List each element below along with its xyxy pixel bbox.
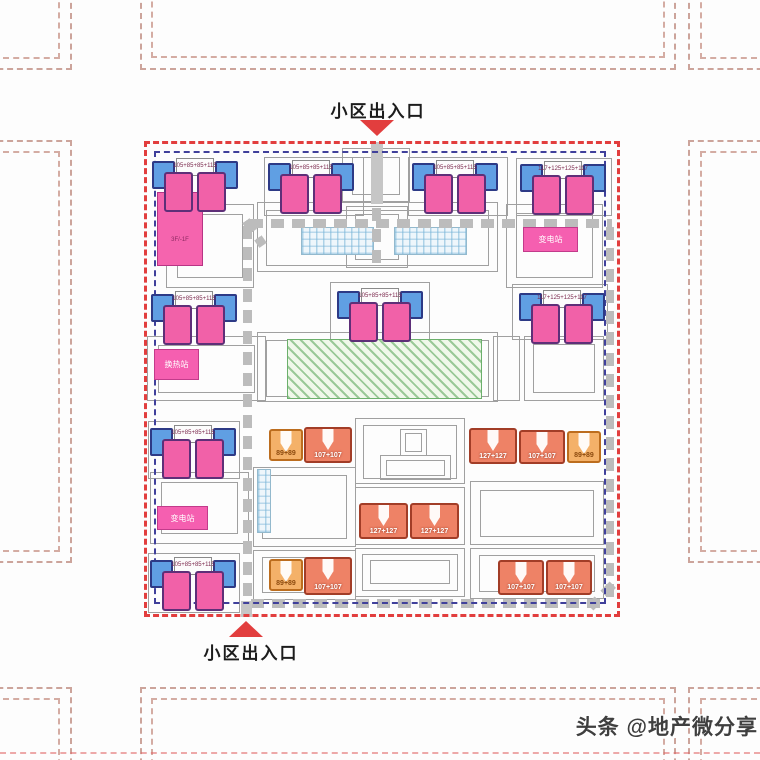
tower-group: 105+85+85+115 (152, 157, 238, 213)
tower-notch (323, 559, 334, 580)
site-plan: 3F/-1F 变电站 换热站 变电站 105+85+85+115 105+85+… (0, 0, 760, 760)
tower-pink (349, 302, 378, 342)
tower-group-label: 117+125+125+117 (514, 166, 612, 172)
heat-exchange-box-west: 换热站 (154, 349, 199, 380)
tower-group: 105+85+85+115 (337, 287, 423, 343)
tower-pink (195, 571, 224, 611)
watermark: 头条 @地产微分享 (540, 711, 758, 741)
orange-tower: 107+107 (304, 557, 352, 595)
tower-pink (564, 304, 593, 344)
tower-notch (537, 432, 548, 453)
orange-tower-label: 107+107 (521, 453, 563, 460)
orange-tower: 89+89 (567, 431, 601, 463)
orange-tower: 107+107 (498, 560, 544, 595)
orange-tower: 107+107 (546, 560, 592, 595)
tower-pink (195, 439, 224, 479)
entrance-label-north: 小区出入口 (308, 97, 448, 122)
substation-label: 变电站 (171, 513, 195, 524)
tower-pink (162, 571, 191, 611)
entrance-label-south: 小区出入口 (181, 639, 321, 664)
tower-pink (162, 439, 191, 479)
parcel-north-inner (151, 0, 665, 58)
tower-pink (531, 304, 560, 344)
substation-label: 变电站 (539, 234, 563, 245)
tower-notch (429, 505, 440, 526)
substation-box-southwest: 变电站 (157, 506, 208, 530)
tower-group: 105+85+85+115 (150, 556, 236, 612)
orange-tower: 107+107 (519, 430, 565, 464)
tower-pink (424, 174, 453, 214)
tower-group-label: 105+85+85+115 (146, 163, 244, 169)
tower-notch (281, 431, 292, 452)
orange-tower-label: 89+89 (569, 452, 599, 459)
orange-tower: 89+89 (269, 429, 303, 461)
orange-tower: 127+127 (469, 428, 517, 464)
entrance-arrow-south (229, 621, 263, 637)
tower-group-label: 105+85+85+115 (145, 296, 243, 302)
orange-tower-label: 89+89 (271, 580, 301, 587)
orange-tower-label: 127+127 (471, 453, 515, 460)
orange-tower: 107+107 (304, 427, 352, 463)
podium-floors-label: 3F/-1F (158, 237, 202, 243)
tower-group-label: 105+85+85+115 (406, 165, 504, 171)
orange-tower-label: 89+89 (271, 450, 301, 457)
orange-tower: 89+89 (269, 559, 303, 591)
tower-group: 105+85+85+115 (151, 290, 237, 346)
parcel-west-inner (0, 151, 60, 552)
tower-pink (197, 172, 226, 212)
tower-group: 117+125+125+117 (519, 289, 605, 345)
tower-pink (163, 305, 192, 345)
tower-pink (280, 174, 309, 214)
substation-box-northeast: 变电站 (523, 227, 578, 252)
orange-tower: 127+127 (410, 503, 459, 539)
orange-tower-label: 107+107 (306, 452, 350, 459)
heat-exchange-label: 换热站 (165, 359, 189, 370)
tower-notch (323, 429, 334, 450)
tower-notch (378, 505, 389, 526)
orange-tower-label: 127+127 (412, 528, 457, 535)
tower-pink (164, 172, 193, 212)
tower-notch (281, 561, 292, 582)
tower-notch (516, 562, 527, 583)
tower-group: 105+85+85+115 (412, 159, 498, 215)
orange-tower-label: 127+127 (361, 528, 406, 535)
tower-group-label: 117+125+125+117 (513, 295, 611, 301)
tower-notch (579, 433, 590, 454)
tower-group-label: 105+85+85+115 (262, 165, 360, 171)
tower-group-label: 105+85+85+115 (331, 293, 429, 299)
orange-tower-label: 107+107 (548, 584, 590, 591)
parcel-northwest-inner (0, 0, 60, 59)
parcel-southwest-inner (0, 698, 60, 760)
tower-notch (488, 430, 499, 451)
orange-tower-label: 107+107 (500, 584, 542, 591)
parcel-northeast-inner (700, 0, 760, 59)
tower-pink (313, 174, 342, 214)
tower-pink (382, 302, 411, 342)
parcel-east-inner (700, 151, 760, 552)
tower-notch (564, 562, 575, 583)
orange-tower: 127+127 (359, 503, 408, 539)
tower-group-label: 105+85+85+115 (144, 430, 242, 436)
tower-group-label: 105+85+85+115 (144, 562, 242, 568)
tower-pink (457, 174, 486, 214)
entrance-arrow-north (360, 120, 394, 136)
orange-tower-label: 107+107 (306, 584, 350, 591)
tower-pink (532, 175, 561, 215)
tower-group: 105+85+85+115 (268, 159, 354, 215)
tower-group: 117+125+125+117 (520, 160, 606, 216)
tower-pink (196, 305, 225, 345)
edge-dashed-line (0, 752, 760, 754)
tower-pink (565, 175, 594, 215)
tower-group: 105+85+85+115 (150, 424, 236, 480)
